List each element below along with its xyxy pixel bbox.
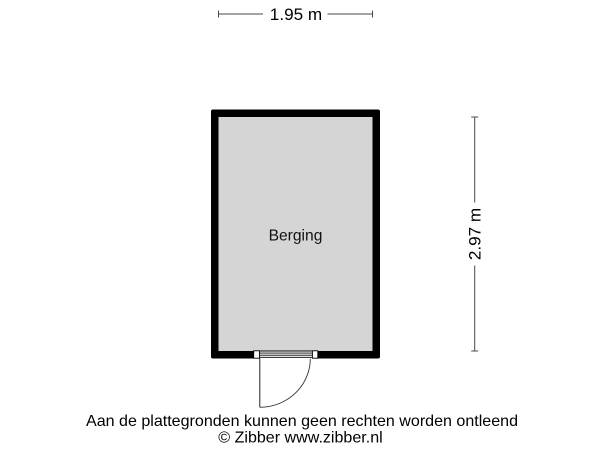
svg-text:2.97 m: 2.97 m: [466, 208, 485, 260]
svg-text:Aan de plattegronden kunnen ge: Aan de plattegronden kunnen geen rechten…: [86, 413, 518, 430]
svg-text:Berging: Berging: [269, 227, 323, 244]
svg-text:1.95 m: 1.95 m: [270, 5, 322, 24]
svg-text:© Zibber www.zibber.nl: © Zibber www.zibber.nl: [218, 429, 382, 446]
